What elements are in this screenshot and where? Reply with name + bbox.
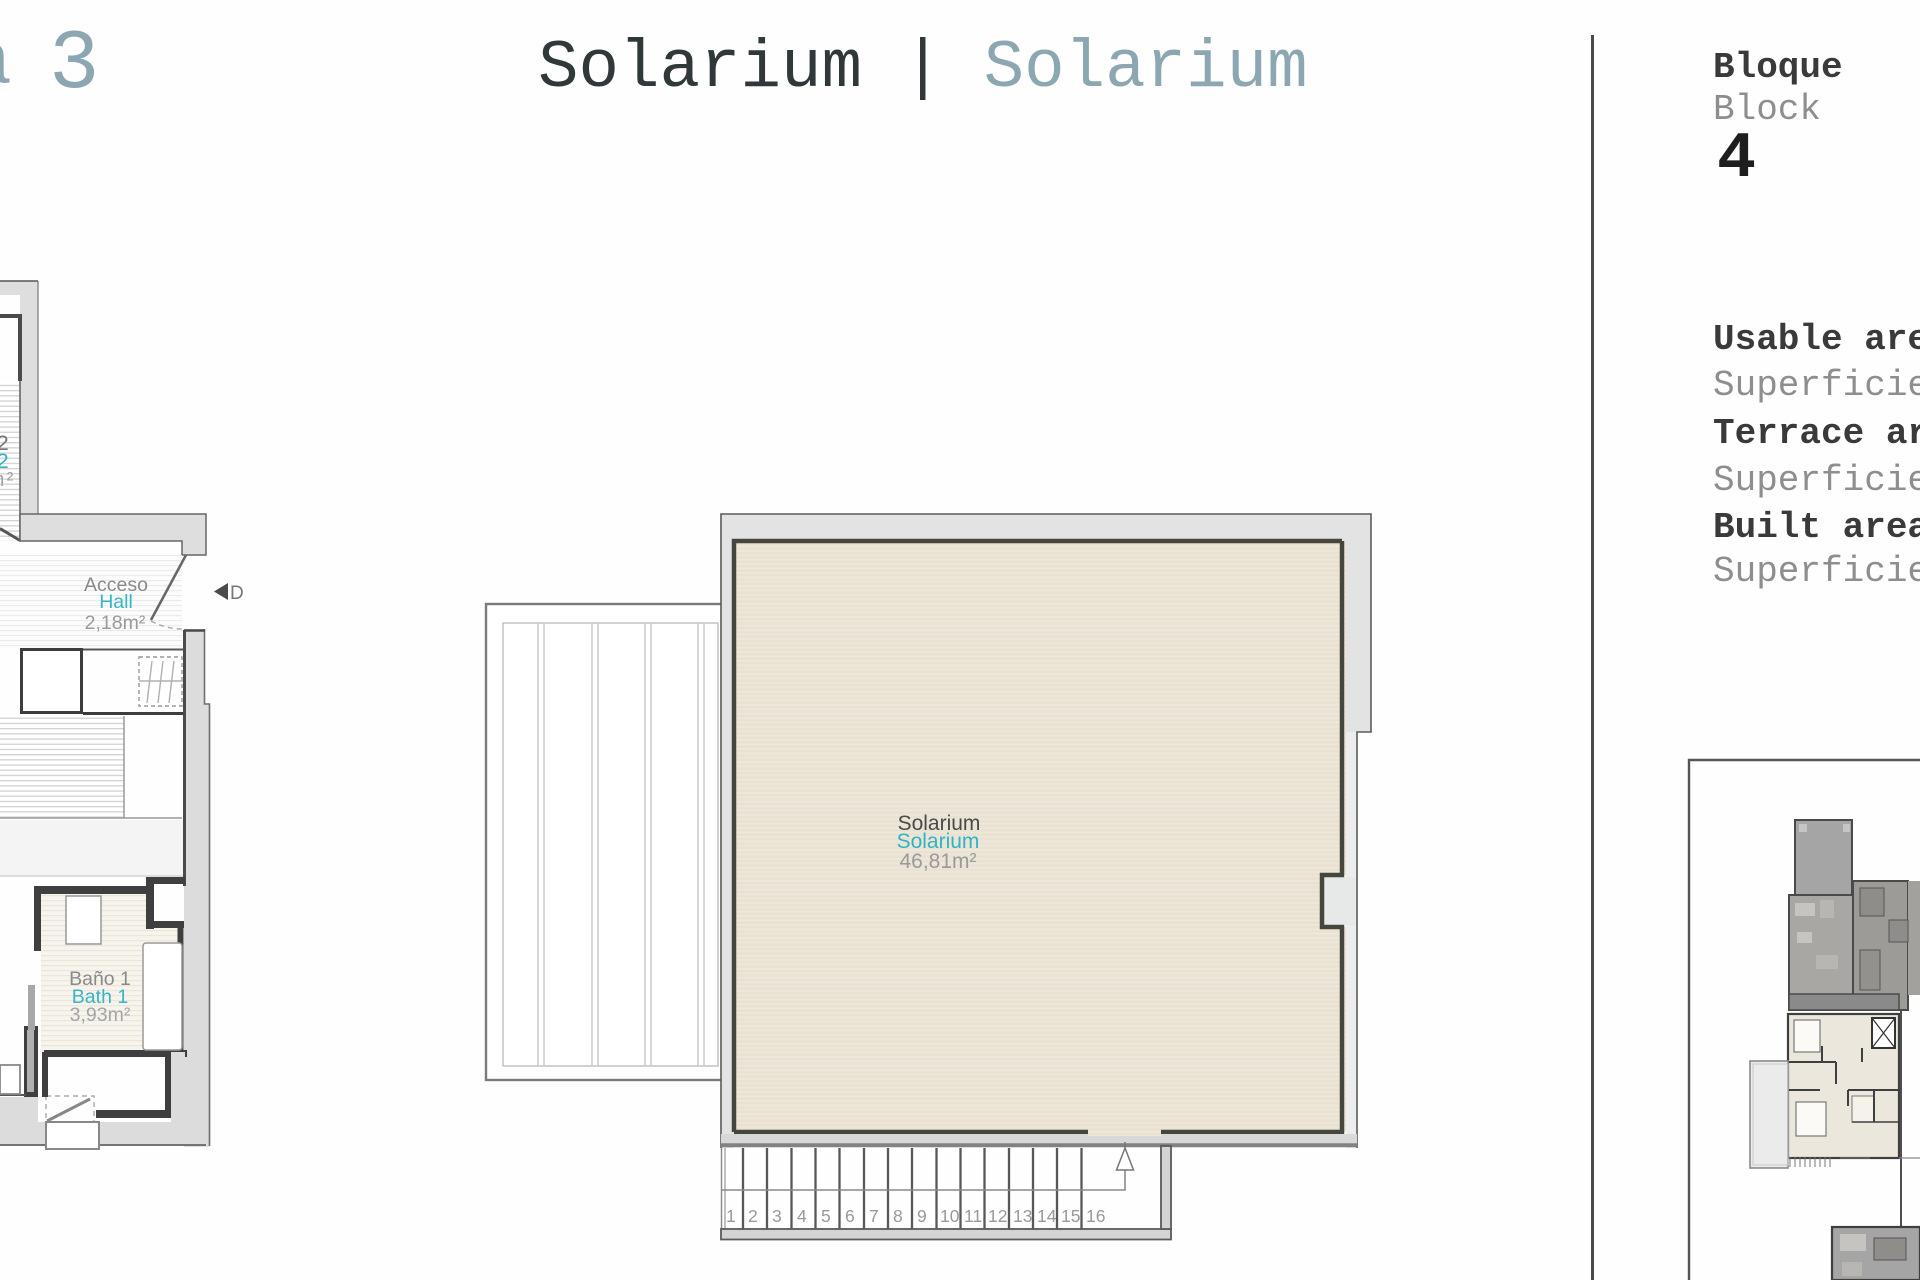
svg-text:2,18m²: 2,18m² — [85, 612, 146, 634]
svg-text:Hall: Hall — [99, 591, 133, 613]
svg-text:9: 9 — [917, 1206, 927, 1226]
svg-text:3: 3 — [772, 1206, 782, 1226]
svg-text:13: 13 — [1013, 1206, 1032, 1226]
svg-text:m²: m² — [0, 470, 16, 493]
svg-text:12: 12 — [988, 1206, 1007, 1226]
svg-text:11: 11 — [964, 1206, 982, 1226]
svg-text:5: 5 — [821, 1206, 831, 1226]
svg-text:46,81m²: 46,81m² — [899, 850, 976, 873]
svg-text:16: 16 — [1086, 1206, 1105, 1226]
svg-text:1: 1 — [726, 1206, 736, 1226]
svg-text:15: 15 — [1061, 1206, 1080, 1226]
svg-text:8: 8 — [893, 1206, 903, 1226]
svg-text:6: 6 — [845, 1206, 855, 1226]
svg-text:14: 14 — [1037, 1206, 1057, 1226]
svg-text:4: 4 — [797, 1206, 807, 1226]
svg-text:3,93m²: 3,93m² — [70, 1004, 131, 1026]
svg-text:D: D — [230, 583, 244, 604]
svg-text:2: 2 — [748, 1206, 758, 1226]
svg-text:7: 7 — [869, 1206, 879, 1226]
svg-text:10: 10 — [940, 1206, 960, 1226]
